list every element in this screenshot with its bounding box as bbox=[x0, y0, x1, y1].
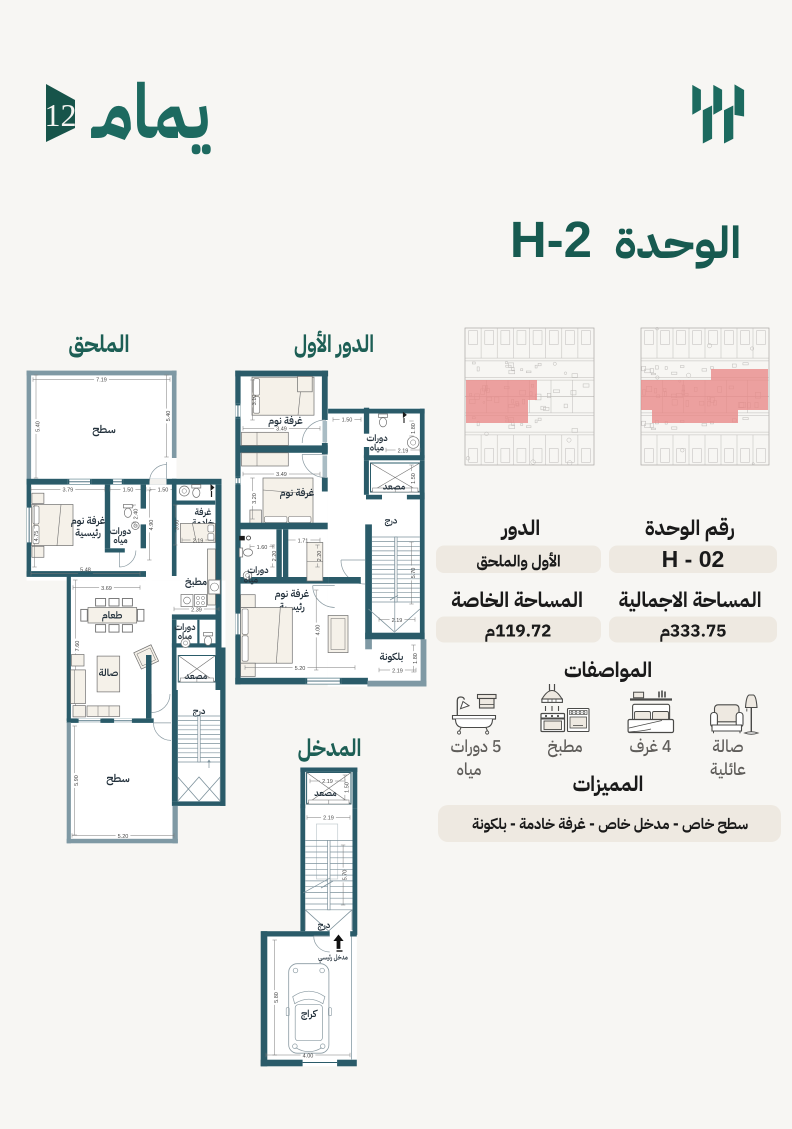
svg-text:3.79: 3.79 bbox=[63, 487, 74, 493]
svg-text:5.70: 5.70 bbox=[411, 568, 417, 579]
svg-text:12: 12 bbox=[45, 97, 77, 133]
svg-text:2.19: 2.19 bbox=[323, 816, 334, 822]
svg-text:1.50: 1.50 bbox=[344, 782, 350, 793]
svg-text:3.10: 3.10 bbox=[252, 395, 258, 406]
svg-text:5.80: 5.80 bbox=[274, 992, 280, 1003]
svg-text:7.60: 7.60 bbox=[75, 641, 81, 652]
svg-text:2.19: 2.19 bbox=[322, 779, 333, 785]
svg-text:5.90: 5.90 bbox=[74, 775, 80, 786]
svg-text:5.70: 5.70 bbox=[343, 870, 349, 881]
svg-text:H-2: H-2 bbox=[510, 211, 592, 268]
svg-text:3.69: 3.69 bbox=[101, 586, 112, 592]
svg-text:1.50: 1.50 bbox=[158, 487, 169, 493]
svg-text:1.80: 1.80 bbox=[413, 653, 419, 664]
svg-text:4.75: 4.75 bbox=[34, 531, 40, 542]
svg-text:2.39: 2.39 bbox=[191, 608, 202, 614]
svg-text:7.19: 7.19 bbox=[96, 378, 107, 384]
svg-text:4.00: 4.00 bbox=[303, 1054, 314, 1060]
svg-text:1.60: 1.60 bbox=[257, 545, 268, 551]
svg-text:3.49: 3.49 bbox=[276, 426, 287, 432]
svg-text:5.20: 5.20 bbox=[295, 666, 306, 672]
svg-text:2.19: 2.19 bbox=[392, 618, 403, 624]
svg-text:3.20: 3.20 bbox=[252, 493, 258, 504]
svg-text:2.20: 2.20 bbox=[317, 551, 323, 562]
svg-text:3.00: 3.00 bbox=[175, 520, 181, 531]
svg-text:1.50: 1.50 bbox=[411, 473, 417, 484]
svg-text:5.40: 5.40 bbox=[166, 411, 172, 422]
svg-text:2.19: 2.19 bbox=[392, 669, 403, 675]
svg-text:1.80: 1.80 bbox=[411, 423, 417, 434]
svg-text:3.49: 3.49 bbox=[276, 472, 287, 478]
svg-text:2.19: 2.19 bbox=[193, 539, 204, 545]
svg-text:5.48: 5.48 bbox=[80, 568, 91, 574]
svg-text:H - 02: H - 02 bbox=[662, 546, 725, 572]
svg-text:2.40: 2.40 bbox=[133, 509, 139, 520]
svg-text:H: H bbox=[134, 524, 137, 529]
svg-text:1.50: 1.50 bbox=[342, 418, 353, 424]
svg-text:5.40: 5.40 bbox=[35, 421, 41, 432]
svg-text:5.20: 5.20 bbox=[118, 834, 129, 840]
svg-text:1.50: 1.50 bbox=[123, 487, 134, 493]
svg-text:4.00: 4.00 bbox=[316, 625, 322, 636]
svg-text:4.90: 4.90 bbox=[149, 520, 155, 531]
svg-text:2.19: 2.19 bbox=[398, 449, 409, 455]
svg-text:2.20: 2.20 bbox=[272, 551, 278, 562]
